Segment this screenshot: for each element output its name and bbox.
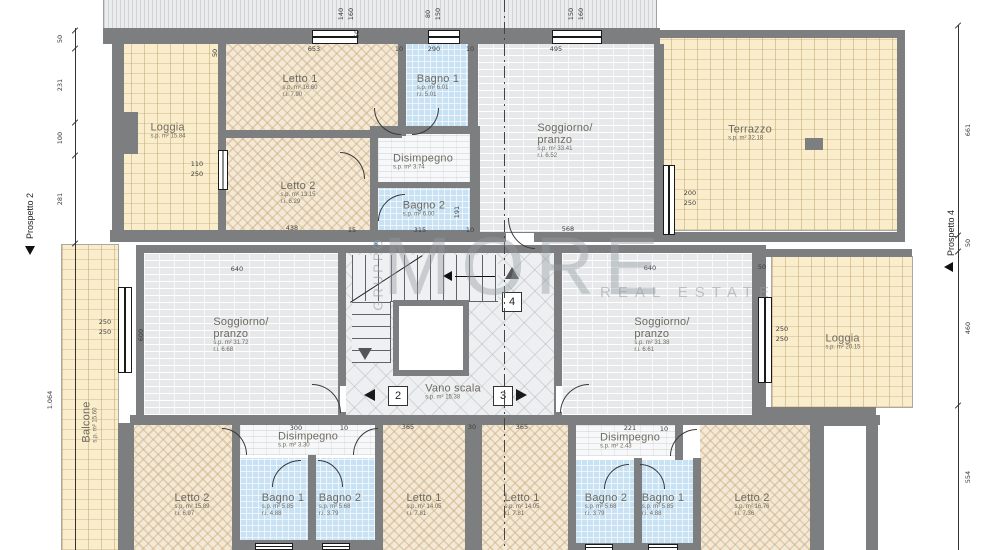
wall bbox=[470, 126, 480, 236]
dimension-label: 250 bbox=[684, 199, 696, 207]
window bbox=[118, 287, 132, 373]
dimension-label: 50 bbox=[964, 239, 972, 247]
wall bbox=[766, 249, 912, 257]
dimension-label: 438 bbox=[286, 224, 298, 232]
dimension-label: 10 bbox=[395, 45, 403, 53]
dimension-label: 200 bbox=[684, 189, 696, 197]
window bbox=[312, 30, 358, 44]
dimension-label: 10 bbox=[466, 226, 474, 234]
wall bbox=[897, 36, 905, 236]
symmetry-centerline bbox=[504, 0, 505, 550]
wall bbox=[652, 30, 905, 38]
dimension-label: 495 bbox=[550, 45, 562, 53]
stair-direction-line bbox=[455, 276, 495, 277]
wall bbox=[866, 418, 878, 550]
window bbox=[758, 297, 772, 383]
wall bbox=[468, 44, 478, 132]
room-disimpegno-top bbox=[378, 132, 470, 184]
dimension-label: 640 bbox=[644, 264, 656, 272]
dimension-label: 250 bbox=[99, 318, 111, 326]
dimension-label: 315 bbox=[414, 226, 426, 234]
wall bbox=[308, 455, 316, 550]
wall bbox=[218, 44, 226, 236]
dimension-label: 50 bbox=[758, 263, 766, 271]
window bbox=[255, 543, 293, 550]
dimension-label: 231 bbox=[56, 79, 64, 91]
dimension-label: 150 bbox=[567, 8, 575, 20]
wall bbox=[370, 182, 476, 188]
wall bbox=[810, 415, 824, 550]
dimension-label: 1.064 bbox=[46, 391, 54, 410]
dimension-label: 568 bbox=[562, 225, 574, 233]
stair-marker-4-arrow-icon bbox=[505, 267, 519, 279]
room-balcone bbox=[62, 245, 118, 550]
dimension-label: 191 bbox=[453, 206, 461, 218]
dimension-label: 160 bbox=[577, 8, 585, 20]
prospetto-4-label: Prospetto 4 bbox=[946, 210, 956, 256]
wall bbox=[112, 112, 138, 154]
room-soggiorno-right bbox=[562, 253, 752, 415]
dimension-label: 281 bbox=[56, 193, 64, 205]
window bbox=[663, 165, 675, 235]
dimension-label: 10 bbox=[660, 425, 668, 433]
dimension-label: 300 bbox=[290, 424, 302, 432]
wall bbox=[568, 423, 576, 550]
window bbox=[322, 543, 350, 550]
wall bbox=[476, 232, 905, 242]
stair-marker-2-arrow-icon bbox=[364, 389, 375, 401]
dimension-label: 460 bbox=[964, 322, 972, 334]
dimension-label: 15 bbox=[348, 226, 356, 234]
room-letto2-bottom-left bbox=[134, 423, 232, 550]
dimension-label: 250 bbox=[776, 325, 788, 333]
dimension-label: 221 bbox=[624, 424, 636, 432]
dimension-label: 290 bbox=[428, 45, 440, 53]
prospetto-2-marker-icon bbox=[25, 246, 35, 255]
window bbox=[585, 544, 613, 550]
window bbox=[218, 150, 228, 190]
dimension-label: 110 bbox=[191, 160, 203, 168]
dimension-label: 150 bbox=[434, 8, 442, 20]
door-opening bbox=[340, 386, 346, 412]
room-letto1-bottom-right bbox=[482, 423, 568, 550]
dimension-line bbox=[75, 28, 76, 550]
stair-direction-arrow-icon bbox=[443, 271, 452, 281]
dimension-line bbox=[958, 25, 959, 550]
stair-marker-4: 4 bbox=[502, 292, 522, 312]
wall bbox=[118, 423, 134, 550]
dimension-label: 50 bbox=[353, 30, 361, 38]
prospetto-2-label: Prospetto 2 bbox=[25, 193, 35, 239]
room-soggiorno-left bbox=[144, 253, 338, 415]
window bbox=[648, 544, 678, 550]
room-letto1-top bbox=[226, 44, 398, 132]
wall bbox=[130, 415, 880, 425]
stair-run-upper bbox=[352, 255, 498, 302]
dimension-label: 80 bbox=[424, 10, 432, 18]
window bbox=[552, 30, 602, 44]
dimension-label: 554 bbox=[964, 471, 972, 483]
stair-marker-2: 2 bbox=[388, 386, 408, 406]
room-loggia-right bbox=[772, 257, 912, 407]
dimension-label: 50 bbox=[56, 35, 64, 43]
dimension-label: 250 bbox=[99, 328, 111, 336]
dimension-label: 10 bbox=[340, 424, 348, 432]
wall bbox=[136, 245, 766, 253]
stair-down-arrow-icon bbox=[358, 348, 372, 360]
dimension-label: 365 bbox=[516, 423, 528, 431]
dimension-label: 653 bbox=[308, 45, 320, 53]
dimension-label: 600 bbox=[137, 329, 145, 341]
dimension-label: 640 bbox=[231, 265, 243, 273]
dimension-label: 50 bbox=[211, 49, 219, 57]
room-letto2-bottom-right bbox=[700, 423, 810, 550]
wall bbox=[370, 126, 378, 236]
elevator-shaft bbox=[393, 300, 469, 376]
wall bbox=[465, 423, 482, 550]
prospetto-4-marker-icon bbox=[944, 262, 953, 272]
dimension-label: 160 bbox=[347, 8, 355, 20]
dimension-label: 250 bbox=[776, 335, 788, 343]
stair-marker-3-arrow-icon bbox=[516, 389, 527, 401]
floor-plan: GRUPPO MORE REAL ESTATE Loggias.p. m² 15… bbox=[0, 0, 1000, 550]
stair-marker-3: 3 bbox=[493, 386, 513, 406]
dimension-label: 100 bbox=[56, 132, 64, 144]
wall bbox=[805, 138, 823, 150]
dimension-label: 10 bbox=[466, 45, 474, 53]
dimension-label: 140 bbox=[337, 8, 345, 20]
dimension-label: 661 bbox=[964, 124, 972, 136]
dimension-label: 30 bbox=[468, 423, 476, 431]
dimension-label: 365 bbox=[402, 423, 414, 431]
wall bbox=[693, 458, 701, 550]
dimension-label: 250 bbox=[191, 170, 203, 178]
asterisk-note: * bbox=[374, 241, 379, 252]
room-letto1-bottom-left bbox=[383, 423, 465, 550]
window bbox=[428, 30, 460, 44]
